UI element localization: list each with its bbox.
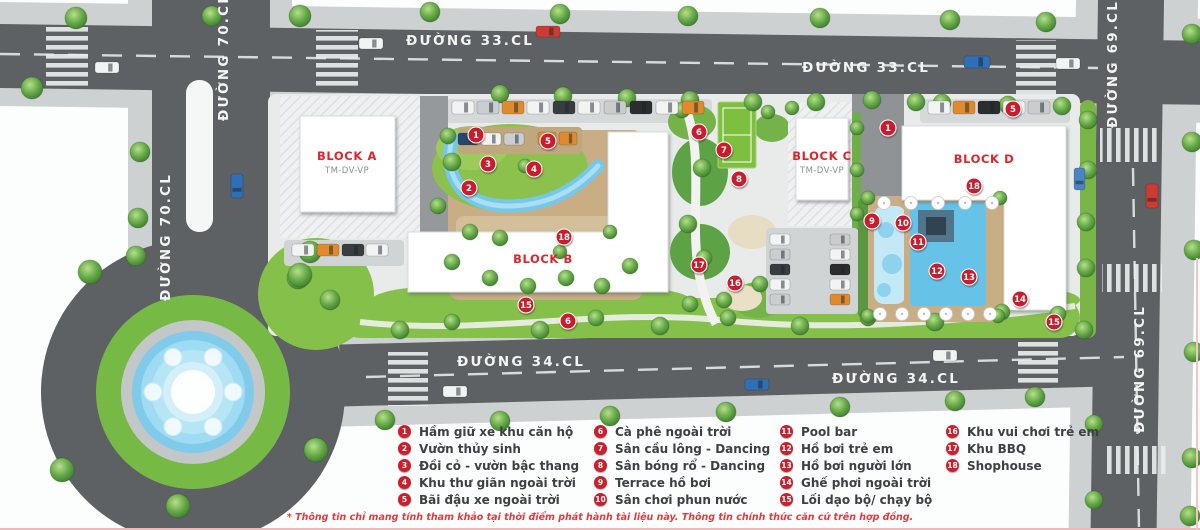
tree-icon xyxy=(531,321,549,339)
svg-text:7: 7 xyxy=(721,146,727,156)
car-icon xyxy=(830,234,850,245)
car-icon xyxy=(536,26,560,37)
car-icon xyxy=(502,101,524,114)
amenity-marker-1: 1 xyxy=(468,127,484,143)
car-icon xyxy=(770,264,790,275)
umbrella-icon xyxy=(984,308,997,321)
amenity-marker-6: 6 xyxy=(560,313,576,329)
tree-icon xyxy=(65,7,87,29)
amenity-marker-9: 9 xyxy=(864,213,880,229)
car-icon xyxy=(342,244,364,256)
tree-icon xyxy=(1053,97,1071,115)
tree-icon xyxy=(130,142,150,162)
svg-text:5: 5 xyxy=(545,137,551,147)
tree-icon xyxy=(444,254,460,270)
car-icon xyxy=(770,279,790,290)
car-icon xyxy=(317,244,339,256)
tree-icon xyxy=(693,159,711,177)
tree-icon xyxy=(682,296,698,312)
amenity-marker-18: 18 xyxy=(556,229,572,245)
car-icon xyxy=(559,132,577,145)
svg-text:8: 8 xyxy=(736,175,742,185)
road-label-duong33-left: ĐƯỜNG 33.CL xyxy=(406,31,534,49)
car-icon xyxy=(1028,101,1050,114)
tree-icon xyxy=(443,153,461,171)
tree-icon xyxy=(810,8,830,28)
car-icon xyxy=(231,174,243,198)
car-icon xyxy=(964,56,990,68)
page-border-right xyxy=(1196,258,1198,530)
tree-icon xyxy=(558,270,574,286)
svg-text:5: 5 xyxy=(1010,105,1016,115)
umbrella-icon xyxy=(905,197,918,210)
amenity-marker-17: 17 xyxy=(691,257,707,273)
tree-icon xyxy=(491,85,509,103)
crosswalk xyxy=(1104,446,1166,474)
crosswalk xyxy=(46,26,88,86)
tree-icon xyxy=(861,191,875,205)
tree-icon xyxy=(850,207,864,221)
master-plan-map: ĐƯỜNG 70.CLĐƯỜNG 70.CLĐƯỜNG 33.CLĐƯỜNG 3… xyxy=(0,0,1200,530)
crosswalk xyxy=(1016,40,1056,98)
fountain-jet xyxy=(144,383,162,401)
road-label-duong70-top: ĐƯỜNG 70.CL xyxy=(214,0,232,121)
tree-icon xyxy=(720,310,736,326)
umbrella-icon xyxy=(932,197,945,210)
tree-icon xyxy=(744,93,762,111)
amenity-marker-18: 18 xyxy=(966,178,982,194)
car-icon xyxy=(527,101,549,114)
umbrella-icon xyxy=(940,308,953,321)
tree-icon xyxy=(863,91,881,109)
amenity-marker-13: 13 xyxy=(961,269,977,285)
tree-icon xyxy=(850,121,864,135)
tree-icon xyxy=(126,246,146,266)
car-icon xyxy=(359,38,383,49)
car-icon xyxy=(656,101,678,114)
tree-icon xyxy=(550,4,570,24)
disclaimer-note: * Thông tin chỉ mang tính tham khảo tại … xyxy=(0,512,1200,523)
tree-icon xyxy=(492,230,508,246)
tree-icon xyxy=(78,260,102,284)
tree-icon xyxy=(1036,12,1056,32)
block-sublabel: TM-DV-VP xyxy=(799,166,844,176)
amenity-marker-4: 4 xyxy=(526,161,542,177)
tree-icon xyxy=(761,105,775,119)
umbrella-icon xyxy=(986,197,999,210)
tree-icon xyxy=(603,225,617,239)
tree-icon xyxy=(440,128,456,144)
tree-icon xyxy=(716,292,732,308)
tree-icon xyxy=(1079,111,1097,129)
car-icon xyxy=(443,386,467,397)
tree-icon xyxy=(320,290,340,310)
car-icon xyxy=(553,101,575,114)
car-icon xyxy=(504,133,524,145)
svg-text:12: 12 xyxy=(931,267,943,277)
amenity-marker-6: 6 xyxy=(691,124,707,140)
car-icon xyxy=(1146,184,1158,208)
car-icon xyxy=(366,244,388,256)
block-sublabel: TM-DV-VP xyxy=(324,166,369,176)
tree-icon xyxy=(1077,259,1095,277)
tree-icon xyxy=(50,458,74,482)
svg-text:13: 13 xyxy=(963,273,975,283)
tree-icon xyxy=(420,2,440,22)
svg-text:11: 11 xyxy=(912,238,924,248)
amenity-marker-15: 15 xyxy=(1046,314,1062,330)
building-block-a xyxy=(300,116,395,212)
svg-text:14: 14 xyxy=(1014,295,1026,305)
tree-icon xyxy=(1085,415,1103,433)
road-label-duong69-top: ĐƯỜNG 69.CL xyxy=(1103,0,1121,128)
car-icon xyxy=(830,294,850,305)
svg-text:15: 15 xyxy=(520,301,532,311)
road-label-duong69-bottom: ĐƯỜNG 69.CL xyxy=(1130,305,1148,433)
car-icon xyxy=(770,249,790,260)
tree-icon xyxy=(1075,321,1093,339)
car-icon xyxy=(630,101,652,114)
svg-text:10: 10 xyxy=(897,219,909,229)
tree-icon xyxy=(791,317,809,335)
umbrella-icon xyxy=(959,197,972,210)
car-icon xyxy=(578,101,600,114)
tree-icon xyxy=(1077,213,1095,231)
tree-icon xyxy=(588,310,604,326)
tree-icon xyxy=(1025,387,1045,407)
tree-icon xyxy=(304,438,328,462)
umbrella-icon xyxy=(918,308,931,321)
svg-text:18: 18 xyxy=(558,233,570,243)
fountain-jet xyxy=(204,348,222,366)
tree-icon xyxy=(444,314,460,330)
road-label-duong34-right: ĐƯỜNG 34.CL xyxy=(832,369,960,387)
car-icon xyxy=(933,350,957,361)
svg-text:1: 1 xyxy=(885,124,891,134)
tree-icon xyxy=(830,397,850,417)
fountain-jet xyxy=(224,383,242,401)
tree-icon xyxy=(716,402,736,422)
tree-icon xyxy=(21,77,43,99)
umbrella-icon xyxy=(878,197,891,210)
tree-icon xyxy=(391,321,409,339)
car-icon xyxy=(770,294,790,305)
svg-text:4: 4 xyxy=(531,165,537,175)
crosswalk xyxy=(1018,334,1058,386)
amenity-marker-3: 3 xyxy=(480,156,496,172)
tree-icon xyxy=(861,309,875,323)
road-label-duong70-mid: ĐƯỜNG 70.CL xyxy=(156,173,174,301)
tree-icon xyxy=(807,93,825,111)
tree-icon xyxy=(945,391,965,411)
tree-icon xyxy=(752,276,768,292)
svg-text:2: 2 xyxy=(466,184,472,194)
tree-icon xyxy=(785,101,799,115)
car-icon xyxy=(745,379,769,390)
tree-icon xyxy=(289,5,311,27)
amenity-marker-14: 14 xyxy=(1012,291,1028,307)
tree-icon xyxy=(907,93,925,111)
tree-icon xyxy=(651,317,669,335)
crosswalk xyxy=(316,30,358,88)
amenity-marker-10: 10 xyxy=(895,215,911,231)
block-label: BLOCK B xyxy=(513,252,573,266)
svg-text:16: 16 xyxy=(729,279,741,289)
amenity-marker-16: 16 xyxy=(727,275,743,291)
svg-text:6: 6 xyxy=(565,317,571,327)
tree-icon xyxy=(679,215,697,233)
amenity-marker-11: 11 xyxy=(910,234,926,250)
car-icon xyxy=(95,62,119,73)
crosswalk xyxy=(1100,128,1160,162)
car-icon xyxy=(928,101,950,114)
tree-icon xyxy=(1182,132,1200,152)
site-plan: ĐƯỜNG 70.CLĐƯỜNG 70.CLĐƯỜNG 33.CLĐƯỜNG 3… xyxy=(0,0,1200,530)
amenity-marker-8: 8 xyxy=(731,171,747,187)
road-label-duong33-right: ĐƯỜNG 33.CL xyxy=(802,58,930,76)
tree-icon xyxy=(128,208,148,228)
car-icon xyxy=(604,101,626,114)
crosswalk xyxy=(1102,264,1162,292)
tree-icon xyxy=(490,411,510,431)
fountain-jet xyxy=(164,418,182,436)
crosswalk xyxy=(388,352,428,406)
svg-text:17: 17 xyxy=(693,261,705,271)
fountain-jet xyxy=(164,348,182,366)
car-icon xyxy=(292,244,314,256)
svg-text:18: 18 xyxy=(968,182,980,192)
car-icon xyxy=(682,101,704,114)
amenity-marker-5: 5 xyxy=(1005,101,1021,117)
car-icon xyxy=(953,101,975,114)
block-label: BLOCK D xyxy=(954,152,1015,166)
amenity-marker-5: 5 xyxy=(540,133,556,149)
amenity-marker-15: 15 xyxy=(518,297,534,313)
svg-text:3: 3 xyxy=(485,160,491,170)
car-icon xyxy=(978,101,1000,114)
car-icon xyxy=(770,234,790,245)
amenity-marker-7: 7 xyxy=(716,142,732,158)
tree-icon xyxy=(678,6,698,26)
tree-icon xyxy=(1085,491,1103,509)
umbrella-icon xyxy=(896,308,909,321)
tree-icon xyxy=(482,270,498,286)
amenity-marker-12: 12 xyxy=(929,263,945,279)
roundabout xyxy=(96,295,290,489)
tree-icon xyxy=(622,258,638,274)
tree-icon xyxy=(594,278,610,294)
car-icon xyxy=(1056,58,1080,69)
car-icon xyxy=(830,249,850,260)
tree-icon xyxy=(288,263,312,287)
road-label-duong34-left: ĐƯỜNG 34.CL xyxy=(457,352,585,370)
car-icon xyxy=(830,264,850,275)
car-icon xyxy=(830,279,850,290)
tree-icon xyxy=(1184,240,1200,260)
svg-text:6: 6 xyxy=(696,128,702,138)
tree-icon xyxy=(850,163,864,177)
tree-icon xyxy=(1182,24,1200,44)
block-label: BLOCK C xyxy=(792,149,851,163)
tree-icon xyxy=(375,410,395,430)
svg-text:15: 15 xyxy=(1048,318,1060,328)
umbrella-icon xyxy=(962,308,975,321)
svg-text:9: 9 xyxy=(869,217,875,227)
tree-icon xyxy=(940,10,960,30)
car-icon xyxy=(477,101,499,114)
tree-icon xyxy=(520,278,536,294)
svg-text:1: 1 xyxy=(473,131,479,141)
tree-icon xyxy=(462,224,478,240)
amenity-marker-1: 1 xyxy=(880,120,896,136)
fountain-jet xyxy=(204,418,222,436)
median-island xyxy=(186,80,213,232)
car-icon xyxy=(1074,168,1085,190)
tree-icon xyxy=(600,406,620,426)
car-icon xyxy=(452,101,474,114)
amenity-marker-2: 2 xyxy=(461,180,477,196)
umbrella-icon xyxy=(874,308,887,321)
tree-icon xyxy=(430,198,446,214)
block-label: BLOCK A xyxy=(317,149,377,163)
